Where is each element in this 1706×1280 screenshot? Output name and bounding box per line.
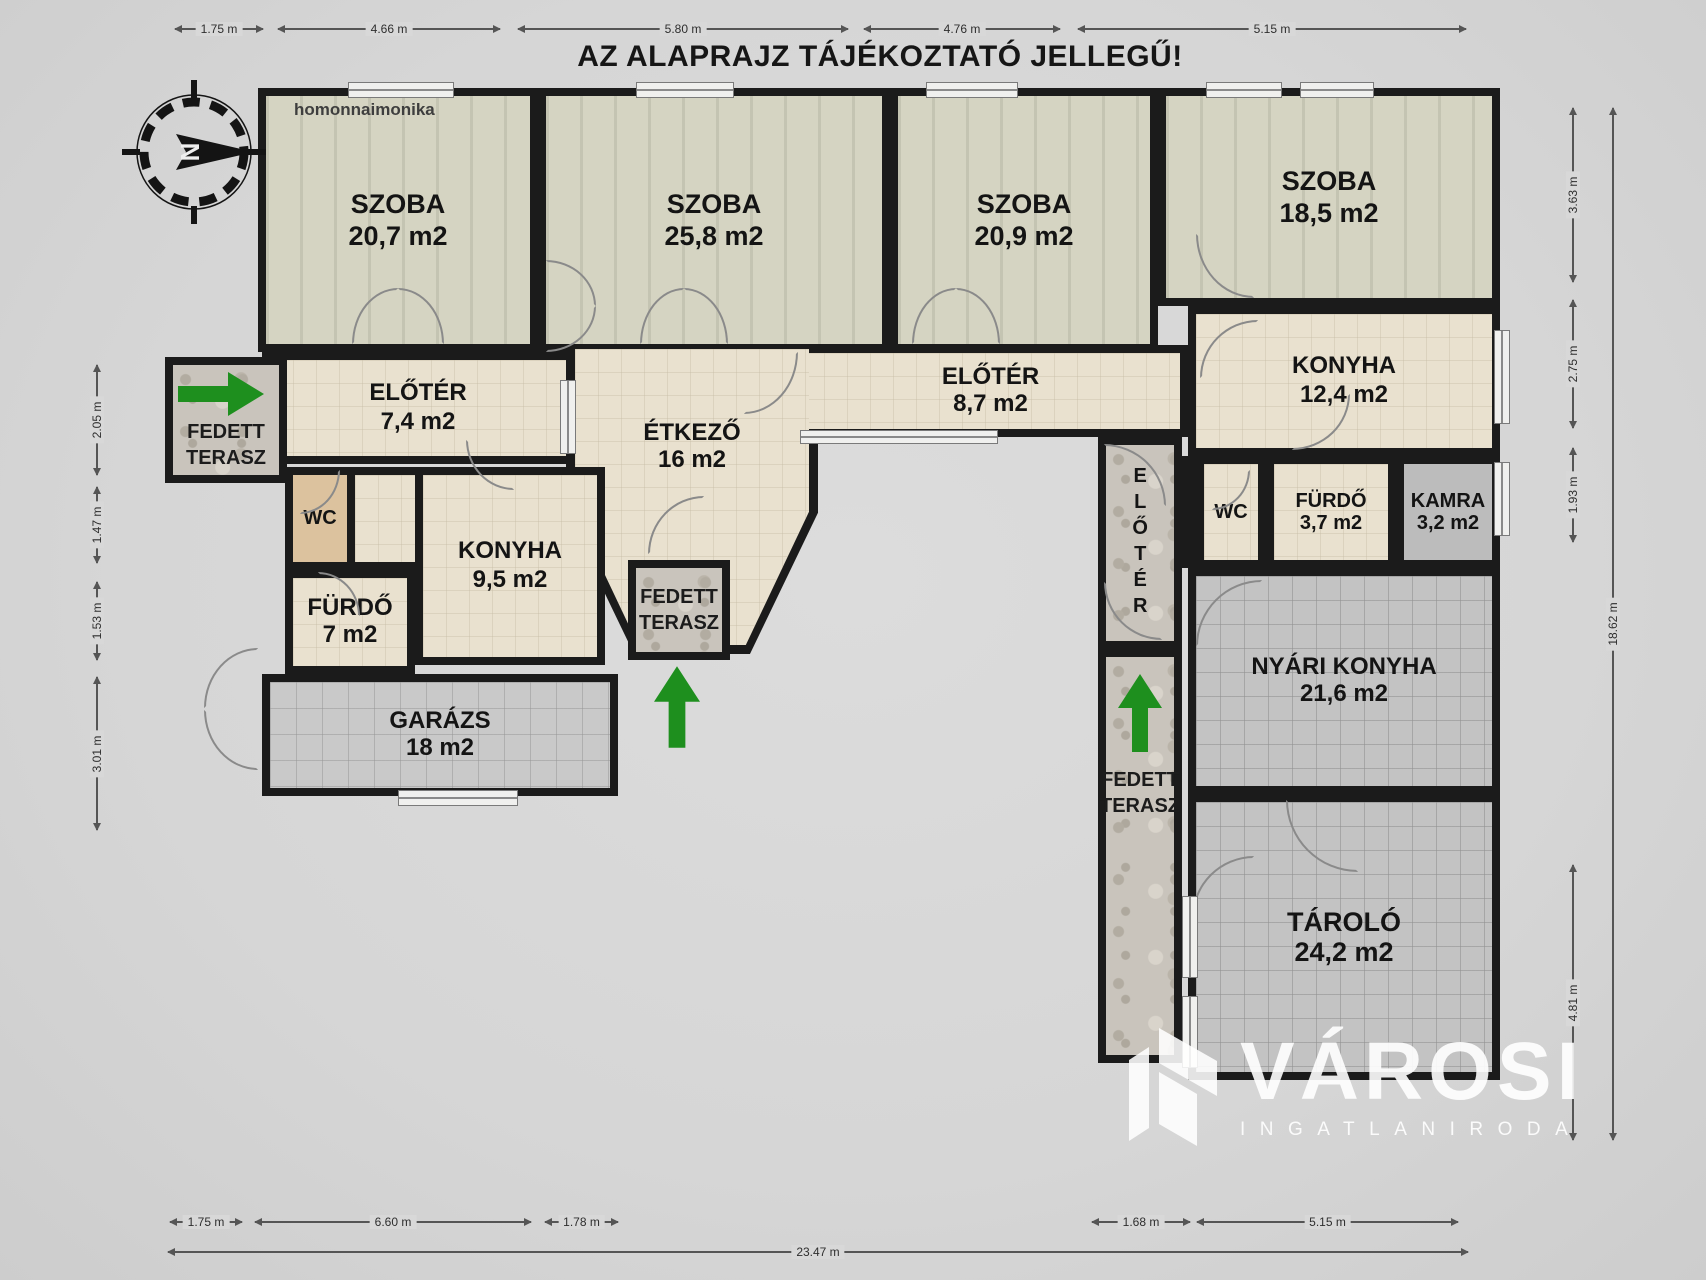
dimension-left-1: 2.05 m (96, 365, 98, 475)
room-area: 7,4 m2 (381, 409, 456, 436)
dimension-top-1: 1.75 m (175, 28, 263, 30)
room-area: 3,2 m2 (1417, 512, 1479, 534)
room-name: SZOBA (1282, 166, 1377, 196)
logo-tagline: INGATLANIRODA (1240, 1119, 1584, 1141)
window (560, 380, 576, 454)
logo-brand: VÁROSI (1240, 1031, 1584, 1113)
dimension-bottom-2: 6.60 m (255, 1221, 531, 1223)
floorplan-canvas: AZ ALAPRAJZ TÁJÉKOZTATÓ JELLEGŰ! homonna… (0, 0, 1706, 1280)
room-area: 21,6 m2 (1300, 681, 1388, 708)
dimension-top-5: 5.15 m (1078, 28, 1466, 30)
window (1494, 462, 1510, 536)
dimension-bottom-1: 1.75 m (170, 1221, 242, 1223)
varosi-logo: VÁROSI INGATLANIRODA (1128, 1016, 1584, 1156)
room-area: 3,7 m2 (1300, 512, 1362, 534)
dimension-top-2: 4.66 m (278, 28, 500, 30)
dimension-left-4: 3.01 m (96, 677, 98, 830)
room-name: ELŐTÉR (369, 380, 466, 407)
room-name: NYÁRI KONYHA (1251, 654, 1436, 681)
entrance-arrow-right-icon (178, 372, 264, 416)
window (636, 82, 734, 98)
dimension-top-4: 4.76 m (864, 28, 1060, 30)
window (1182, 896, 1198, 978)
dimension-bottom-3: 1.78 m (545, 1221, 618, 1223)
room-eloter-87: ELŐTÉR 8,7 m2 (793, 345, 1188, 437)
room-name: GARÁZS (389, 708, 490, 735)
window (800, 430, 998, 444)
room-name: KAMRA (1411, 490, 1485, 512)
dimension-right-1: 3.63 m (1572, 108, 1574, 282)
dimension-bottom-4: 1.68 m (1092, 1221, 1190, 1223)
terrace-right: FEDETT TERASZ (1098, 649, 1182, 1063)
room-kamra: KAMRA 3,2 m2 (1396, 456, 1500, 568)
room-furdo-37: FÜRDŐ 3,7 m2 (1266, 456, 1396, 568)
watermark-text: homonnaimonika (294, 100, 435, 120)
room-area: 20,9 m2 (974, 221, 1073, 251)
room-garazs: GARÁZS 18 m2 (262, 674, 618, 796)
room-name: KONYHA (1292, 353, 1396, 380)
door-arc (204, 710, 258, 770)
window (1300, 82, 1374, 98)
room-name: FEDETT TERASZ (1100, 767, 1180, 819)
dimension-bottom-5: 5.15 m (1197, 1221, 1458, 1223)
room-eloter-74: ELŐTÉR 7,4 m2 (262, 352, 574, 464)
window (398, 790, 518, 806)
room-name: SZOBA (977, 189, 1072, 219)
room-name: SZOBA (351, 189, 446, 219)
room-area: 25,8 m2 (664, 221, 763, 251)
room-area: 20,7 m2 (348, 221, 447, 251)
door-arc (204, 648, 258, 708)
room-area: 18,5 m2 (1279, 198, 1378, 228)
room-name: FÜRDŐ (1295, 490, 1366, 512)
dimension-left-3: 1.53 m (96, 582, 98, 660)
page-title: AZ ALAPRAJZ TÁJÉKOZTATÓ JELLEGŰ! (420, 40, 1340, 74)
room-area: 8,7 m2 (953, 391, 1028, 418)
room-name: KONYHA (458, 538, 562, 565)
room-name: FEDETT TERASZ (173, 419, 279, 471)
dimension-right-2: 2.75 m (1572, 300, 1574, 428)
room-furdo-7: FÜRDŐ 7 m2 (285, 570, 415, 674)
room-area: 16 m2 (658, 446, 726, 473)
compass-icon: N (120, 78, 268, 226)
dimension-bottom-total: 23.47 m (168, 1251, 1468, 1253)
dimension-right-total: 18.62 m (1612, 108, 1614, 1140)
room-area: 24,2 m2 (1294, 937, 1393, 967)
compass-north-label: N (175, 143, 205, 162)
varosi-logo-icon (1128, 1016, 1220, 1156)
wall-filler (1182, 456, 1198, 568)
room-name: SZOBA (667, 189, 762, 219)
hall-filler (347, 467, 423, 570)
dimension-top-3: 5.80 m (518, 28, 848, 30)
entrance-arrow-up-mid-icon (654, 666, 700, 748)
window (1206, 82, 1282, 98)
room-konyha-95: KONYHA 9,5 m2 (415, 467, 605, 665)
window (1494, 330, 1510, 424)
room-area: 18 m2 (406, 735, 474, 762)
room-name: FEDETT TERASZ (636, 584, 722, 636)
dimension-left-2: 1.47 m (96, 487, 98, 563)
room-name: ÉTKEZŐ (643, 419, 740, 446)
room-area: 9,5 m2 (473, 567, 548, 594)
room-name: TÁROLÓ (1287, 907, 1401, 937)
window (348, 82, 454, 98)
room-area: 7 m2 (323, 622, 378, 649)
varosi-logo-text: VÁROSI INGATLANIRODA (1240, 1031, 1584, 1141)
entrance-arrow-up-right-icon (1118, 673, 1162, 753)
terrace-mid: FEDETT TERASZ (628, 560, 730, 660)
window (926, 82, 1018, 98)
room-name: ELŐTÉR (942, 364, 1039, 391)
dimension-right-3: 1.93 m (1572, 448, 1574, 542)
